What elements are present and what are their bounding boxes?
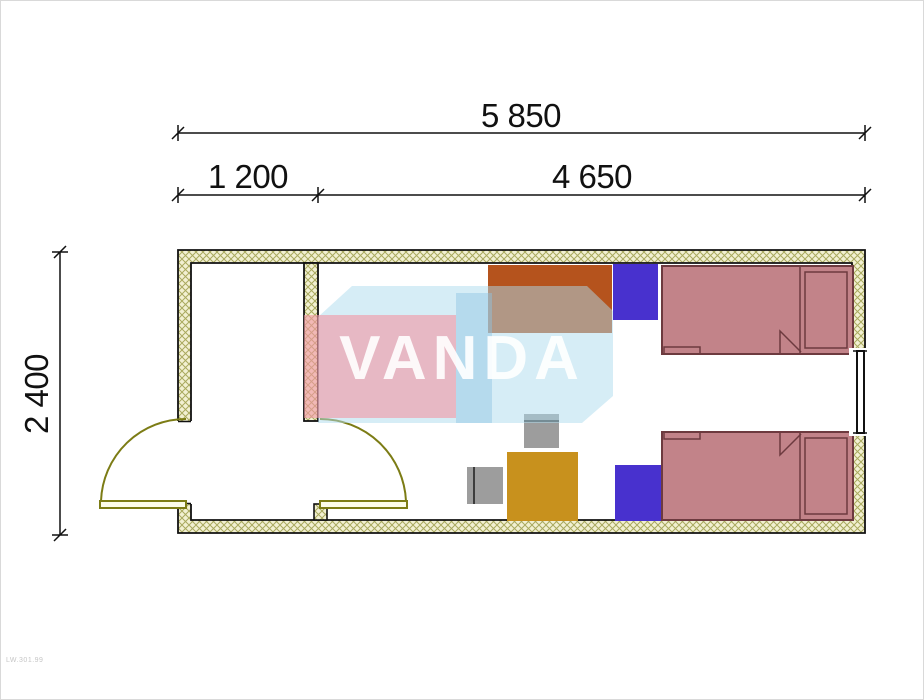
nightstand-top xyxy=(613,264,658,320)
chair-left-seat xyxy=(467,467,503,504)
door-leaf-right xyxy=(320,501,407,508)
door-swing-arc-left xyxy=(101,419,186,501)
bed-bottom-outline xyxy=(662,432,853,520)
wall-opening-mask xyxy=(175,421,193,504)
watermark: VANDA xyxy=(304,286,613,423)
bed-top xyxy=(662,266,853,354)
floor-plan-canvas: 5 850 1 200 4 650 2 400 VANDA LW.301.99 xyxy=(0,0,924,700)
dim-label-overall-width: 5 850 xyxy=(481,97,561,134)
window xyxy=(849,348,869,436)
floor-plan-drawing: 5 850 1 200 4 650 2 400 VANDA LW.301.99 xyxy=(0,0,924,700)
watermark-logo-text: VANDA xyxy=(339,324,585,393)
door-leaf-left xyxy=(100,501,186,508)
entry-door-opening xyxy=(175,421,193,504)
dim-label-entry-width: 1 200 xyxy=(208,158,288,195)
table xyxy=(507,452,578,521)
door-swing-arc-right xyxy=(320,419,406,501)
dim-label-height: 2 400 xyxy=(18,354,55,434)
drawing-stamp-text: LW.301.99 xyxy=(6,657,43,664)
dim-label-room-width: 4 650 xyxy=(552,158,632,195)
nightstand-bottom xyxy=(615,465,661,521)
bed-top-outline xyxy=(662,266,853,354)
chair-left xyxy=(467,467,503,504)
window-frame xyxy=(857,351,864,433)
doors xyxy=(100,419,407,508)
bed-bottom xyxy=(662,432,853,520)
